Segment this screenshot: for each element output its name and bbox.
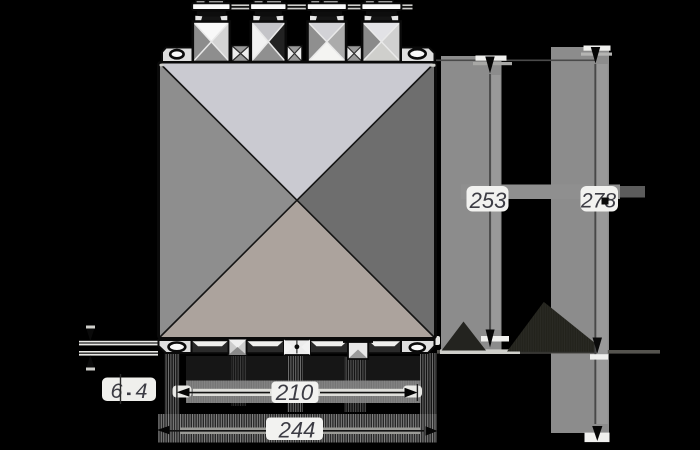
svg-text:244: 244	[278, 418, 316, 443]
svg-text:278: 278	[580, 190, 616, 213]
svg-text:4: 4	[136, 379, 148, 403]
svg-text:253: 253	[469, 188, 507, 213]
svg-text:210: 210	[275, 380, 314, 405]
